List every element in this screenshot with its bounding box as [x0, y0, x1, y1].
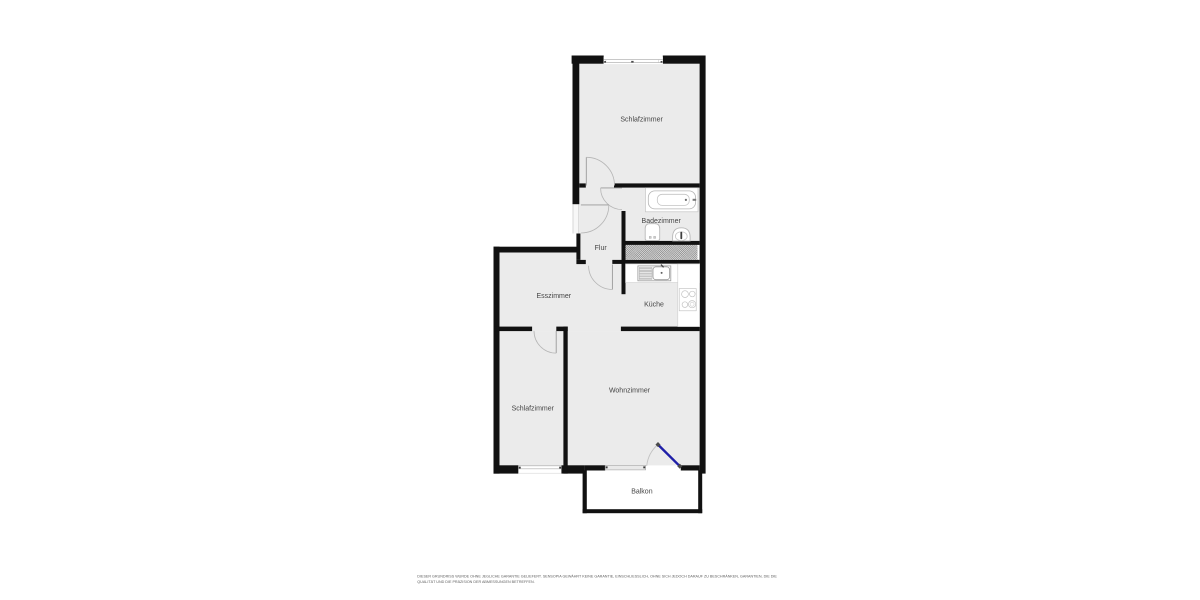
- svg-text:Balkon: Balkon: [631, 488, 653, 495]
- svg-text:Schlafzimmer: Schlafzimmer: [512, 405, 555, 412]
- svg-text:Küche: Küche: [644, 301, 664, 308]
- svg-text:Esszimmer: Esszimmer: [536, 293, 571, 300]
- svg-text:DIESER GRUNDRISS WURDE OHNE JE: DIESER GRUNDRISS WURDE OHNE JEGLICHE GAR…: [417, 575, 777, 579]
- svg-text:Flur: Flur: [595, 245, 608, 252]
- svg-text:QUALITÄT UND DIE PRÄZISION DER: QUALITÄT UND DIE PRÄZISION DER ABMESSUNG…: [417, 580, 534, 584]
- svg-text:Schlafzimmer: Schlafzimmer: [620, 116, 663, 123]
- svg-text:Badezimmer: Badezimmer: [642, 218, 682, 225]
- svg-text:Wohnzimmer: Wohnzimmer: [609, 387, 651, 394]
